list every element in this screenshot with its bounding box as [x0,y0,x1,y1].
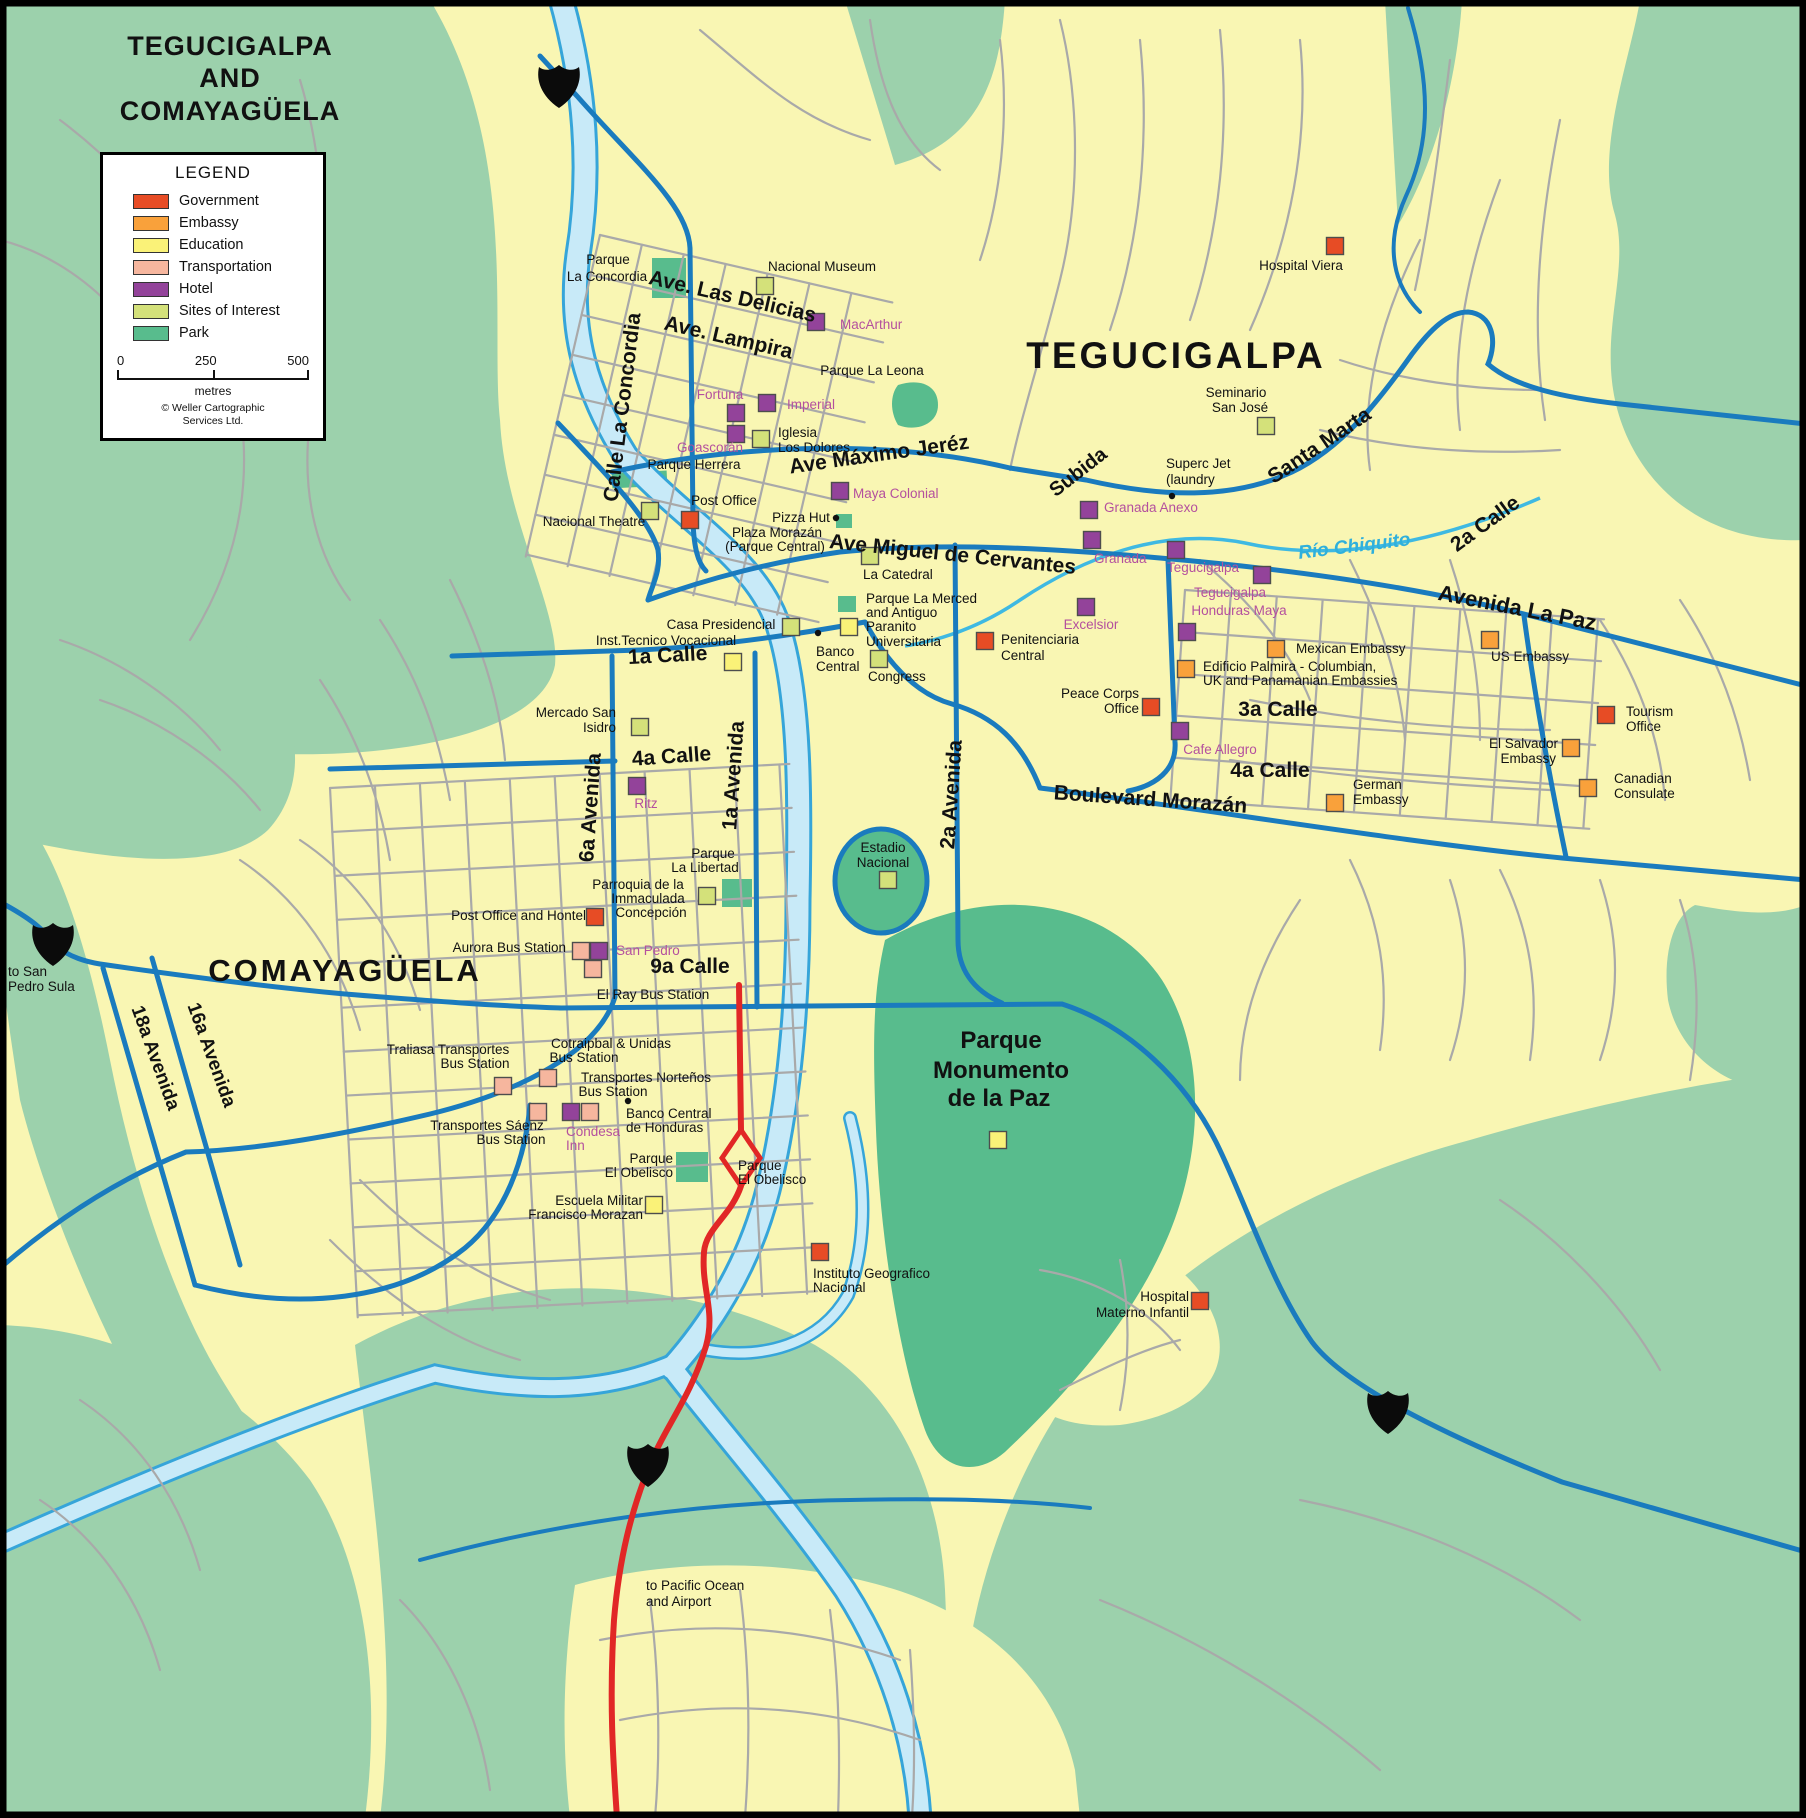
poi-label-granada-anexo: Granada Anexo [1104,500,1198,515]
legend-label: Hotel [179,281,213,297]
legend-item-hotel: Hotel [133,281,323,297]
education-marker [646,1197,663,1214]
poi-label-parque-la-leona: Parque La Leona [820,363,924,378]
poi-label-penitenciaria-central: Penitenciaria [1001,632,1080,647]
poi-label-macarthur: MacArthur [840,317,903,332]
transportation-marker [585,961,602,978]
poi-label-parroquia: Parroquia de la [592,877,684,892]
map-title-line1: TEGUCIGALPA [100,30,360,62]
poi-label-parque-la-libertad: La Libertad [671,860,739,875]
poi-label-cafe-allegro: Cafe Allegro [1183,742,1257,757]
poi-label-parque-la-libertad: Parque [691,846,735,861]
poi-label-ritz: Ritz [634,796,657,811]
poi-label-el-salvador-embassy: Embassy [1500,751,1556,766]
legend-item-education: Education [133,237,323,253]
scale-line [117,370,309,380]
hotel-marker [1179,624,1196,641]
map-title-line3: COMAYAGÜELA [100,95,360,127]
legend: LEGEND GovernmentEmbassyEducationTranspo… [100,152,326,441]
hotel-marker [591,943,608,960]
poi-label-parque-el-obelisco-w: El Obelisco [605,1165,673,1180]
poi-label-san-pedro: San Pedro [616,943,680,958]
poi-label-hospital-materno: Materno Infantil [1096,1305,1189,1320]
poi-label-banco-central: Central [816,659,860,674]
poi-label-nortenos: Bus Station [578,1084,647,1099]
poi-label-parroquia: Immaculada [611,891,685,906]
sites-marker [783,619,800,636]
poi-label-tourism-office: Tourism [1626,704,1673,719]
poi-dot [815,630,821,636]
legend-label: Embassy [179,215,239,231]
poi-label-german-embassy: Embassy [1353,792,1409,807]
poi-label-us-embassy: US Embassy [1491,649,1569,664]
poi-label-penitenciaria-central: Central [1001,648,1045,663]
poi-label-instituto-geografico: Instituto Geografico [813,1266,930,1281]
poi-label-parque-monumento: Parque [960,1027,1041,1054]
poi-label-superc-jet: Superc Jet [1166,456,1231,471]
legend-swatch-transportation [133,260,169,275]
sites-marker [880,872,897,889]
government-marker [682,512,699,529]
poi-label-parque-la-merced: Parque La Merced [866,591,977,606]
legend-label: Sites of Interest [179,303,280,319]
poi-label-iglesia-los-dolores: Los Dolores [778,440,850,455]
hotel-marker [563,1104,580,1121]
poi-label-congress: Congress [868,669,926,684]
legend-swatch-park [133,326,169,341]
poi-label-cotraipbal: Cotraipbal & Unidas [551,1036,671,1051]
legend-swatch-hotel [133,282,169,297]
education-marker [725,654,742,671]
transportation-marker [573,943,590,960]
sites-marker [871,651,888,668]
hotel-marker [1168,542,1185,559]
poi-label-hospital-materno: Hospital [1140,1289,1189,1304]
poi-label-parque-la-concordia: Parque [586,252,630,267]
poi-label-parque-herrera: Parque Herrera [647,457,741,472]
poi-label-cotraipbal: Bus Station [549,1050,618,1065]
poi-label-traliasa: Traliasa Transportes [387,1042,510,1057]
poi-label-excelsior: Excelsior [1064,617,1119,632]
legend-item-park: Park [133,325,323,341]
poi-label-inst-tecnico: Inst.Tecnico Vocacional [596,633,736,648]
government-marker [587,909,604,926]
poi-label-nacional-theatre: Nacional Theatre [543,514,646,529]
transportation-marker [495,1078,512,1095]
sites-marker [1258,418,1275,435]
sites-marker [699,888,716,905]
poi-label-mercado-san-isidro: Mercado San [536,705,616,720]
poi-label-to-pacific-ocean: and Airport [646,1594,712,1609]
poi-label-parroquia: Concepción [615,905,686,920]
poi-label-parque-el-obelisco-w: Parque [629,1151,673,1166]
poi-label-peace-corps: Peace Corps [1061,686,1139,701]
area-label-tegucigalpa: TEGUCIGALPA [1026,335,1326,376]
map: TEGUCIGALPACOMAYAGÜELAAve. Las DeliciasA… [0,0,1806,1818]
poi-label-tourism-office: Office [1626,719,1661,734]
legend-swatch-education [133,238,169,253]
poi-label-parque-la-merced: Universitaria [866,634,942,649]
poi-dot [1169,493,1175,499]
scale-credit: © Weller Cartographic Services Ltd. [117,402,309,428]
poi-label-banco-central-honduras: Banco Central [626,1106,712,1121]
hotel-marker [1084,532,1101,549]
education-marker [990,1132,1007,1149]
poi-label-banco-central: Banco [816,644,854,659]
poi-label-edificio-palmira: Edificio Palmira - Columbian, [1203,659,1376,674]
poi-label-escuela-militar: Escuela Militar [555,1193,643,1208]
poi-label-saenz: Transportes Sáenz [430,1118,544,1133]
legend-swatch-government [133,194,169,209]
poi-label-peace-corps: Office [1104,701,1139,716]
poi-label-hospital-viera: Hospital Viera [1259,258,1343,273]
scale-0: 0 [117,353,124,368]
poi-label-post-office-hontel: Post Office and Hontel [451,908,586,923]
poi-label-estadio-nacional: Estadio [860,840,905,855]
poi-label-parque-la-concordia: La Concordia [567,269,648,284]
poi-label-parque-el-obelisco-e: El Obelisco [738,1172,806,1187]
transportation-marker [540,1070,557,1087]
poi-label-canadian-consulate: Consulate [1614,786,1675,801]
poi-label-to-san-pedro-sula: to San [8,964,47,979]
poi-label-fortuna: Fortuna [697,387,744,402]
poi-label-seminario-san-jose: San José [1212,400,1268,415]
poi-label-parque-monumento: Monumento [933,1057,1069,1084]
parque-la-leona-area [892,382,938,427]
poi-dot [833,515,839,521]
poi-label-condesa-inn: Inn [566,1138,585,1153]
parque-la-libertad-area [722,879,752,907]
poi-label-instituto-geografico: Nacional [813,1280,866,1295]
legend-swatch-sites [133,304,169,319]
poi-label-parque-la-merced: and Antiguo [866,605,937,620]
legend-title: LEGEND [103,163,323,183]
embassy-marker [1178,661,1195,678]
poi-label-granada: Granada [1094,551,1147,566]
scale-250: 250 [195,353,217,368]
poi-label-aurora-bus: Aurora Bus Station [453,940,566,955]
poi-label-plaza-morazan: Plaza Morazán [732,525,822,540]
hotel-marker [1172,723,1189,740]
poi-label-edificio-palmira: UK and Panamanian Embassies [1203,673,1398,688]
sites-marker [632,719,649,736]
poi-label-saenz: Bus Station [476,1132,545,1147]
scale-500: 500 [287,353,309,368]
government-marker [977,633,994,650]
legend-items: GovernmentEmbassyEducationTransportation… [103,193,323,341]
poi-label-seminario-san-jose: Seminario [1206,385,1267,400]
poi-label-la-catedral: La Catedral [863,567,933,582]
government-marker [1327,238,1344,255]
poi-label-to-san-pedro-sula: Pedro Sula [8,979,75,994]
street-label: 4a Calle [1230,759,1309,782]
hotel-marker [1078,599,1095,616]
poi-label-parque-la-merced: Paranito [866,619,916,634]
government-marker [1192,1293,1209,1310]
embassy-marker [1327,795,1344,812]
poi-label-el-ray: El Ray Bus Station [597,987,710,1002]
embassy-marker [1580,780,1597,797]
poi-label-post-office: Post Office [691,493,757,508]
hotel-marker [832,483,849,500]
poi-label-traliasa: Bus Station [440,1056,509,1071]
poi-label-pizza-hut: Pizza Hut [772,510,830,525]
embassy-marker [1482,632,1499,649]
poi-label-tegucigalpa-hotel: Tegucigalpa [1167,560,1240,575]
embassy-marker [1268,641,1285,658]
transportation-marker [582,1104,599,1121]
poi-label-casa-presidencial: Casa Presidencial [667,617,776,632]
embassy-marker [1563,740,1580,757]
poi-label-condesa-inn: Condesa [566,1124,621,1139]
street-label: 3a Calle [1238,698,1317,721]
poi-label-nortenos: Transportes Norteños [581,1070,711,1085]
poi-label-goascoran: Goascorán [677,440,743,455]
poi-label-to-pacific-ocean: to Pacific Ocean [646,1578,744,1593]
map-title: TEGUCIGALPA AND COMAYAGÜELA [100,30,360,127]
poi-label-mexican-embassy: Mexican Embassy [1296,641,1406,656]
sites-marker [753,431,770,448]
legend-label: Government [179,193,259,209]
legend-item-government: Government [133,193,323,209]
legend-label: Park [179,325,209,341]
street-label: 9a Calle [650,955,729,978]
hotel-marker [629,778,646,795]
poi-label-parque-el-obelisco-e: Parque [738,1158,782,1173]
education-marker [841,619,858,636]
legend-swatch-embassy [133,216,169,231]
legend-item-sites: Sites of Interest [133,303,323,319]
government-marker [1143,699,1160,716]
hotel-marker [1254,567,1271,584]
government-marker [1598,707,1615,724]
legend-label: Education [179,237,244,253]
hotel-marker [728,405,745,422]
legend-item-embassy: Embassy [133,215,323,231]
poi-label-canadian-consulate: Canadian [1614,771,1672,786]
legend-item-transportation: Transportation [133,259,323,275]
poi-label-maya-colonial: Maya Colonial [853,486,939,501]
poi-label-german-embassy: German [1353,777,1402,792]
hotel-marker [759,395,776,412]
scale-bar: 0 250 500 metres © Weller Cartographic S… [117,353,309,428]
poi-label-iglesia-los-dolores: Iglesia [778,425,818,440]
poi-label-plaza-morazan: (Parque Central) [725,539,825,554]
poi-label-el-salvador-embassy: El Salvador [1489,736,1559,751]
poi-label-mercado-san-isidro: Isidro [583,720,616,735]
poi-label-superc-jet: (laundry [1166,472,1215,487]
government-marker [812,1244,829,1261]
area-label-comayaguela: COMAYAGÜELA [208,953,482,988]
map-title-line2: AND [100,62,360,94]
poi-label-nacional-museum: Nacional Museum [768,259,876,274]
hotel-marker [1081,502,1098,519]
poi-label-escuela-militar: Francisco Morazan [528,1207,643,1222]
poi-label-parque-monumento: de la Paz [948,1085,1051,1112]
poi-label-tegucigalpa-honduras-maya: Honduras Maya [1191,603,1287,618]
poi-label-banco-central-honduras: de Honduras [626,1120,704,1135]
poi-label-estadio-nacional: Nacional [857,855,910,870]
poi-label-tegucigalpa-honduras-maya: Tegucigalpa [1194,585,1267,600]
legend-label: Transportation [179,259,272,275]
scale-unit: metres [117,384,309,398]
poi-label-imperial: Imperial [787,397,835,412]
